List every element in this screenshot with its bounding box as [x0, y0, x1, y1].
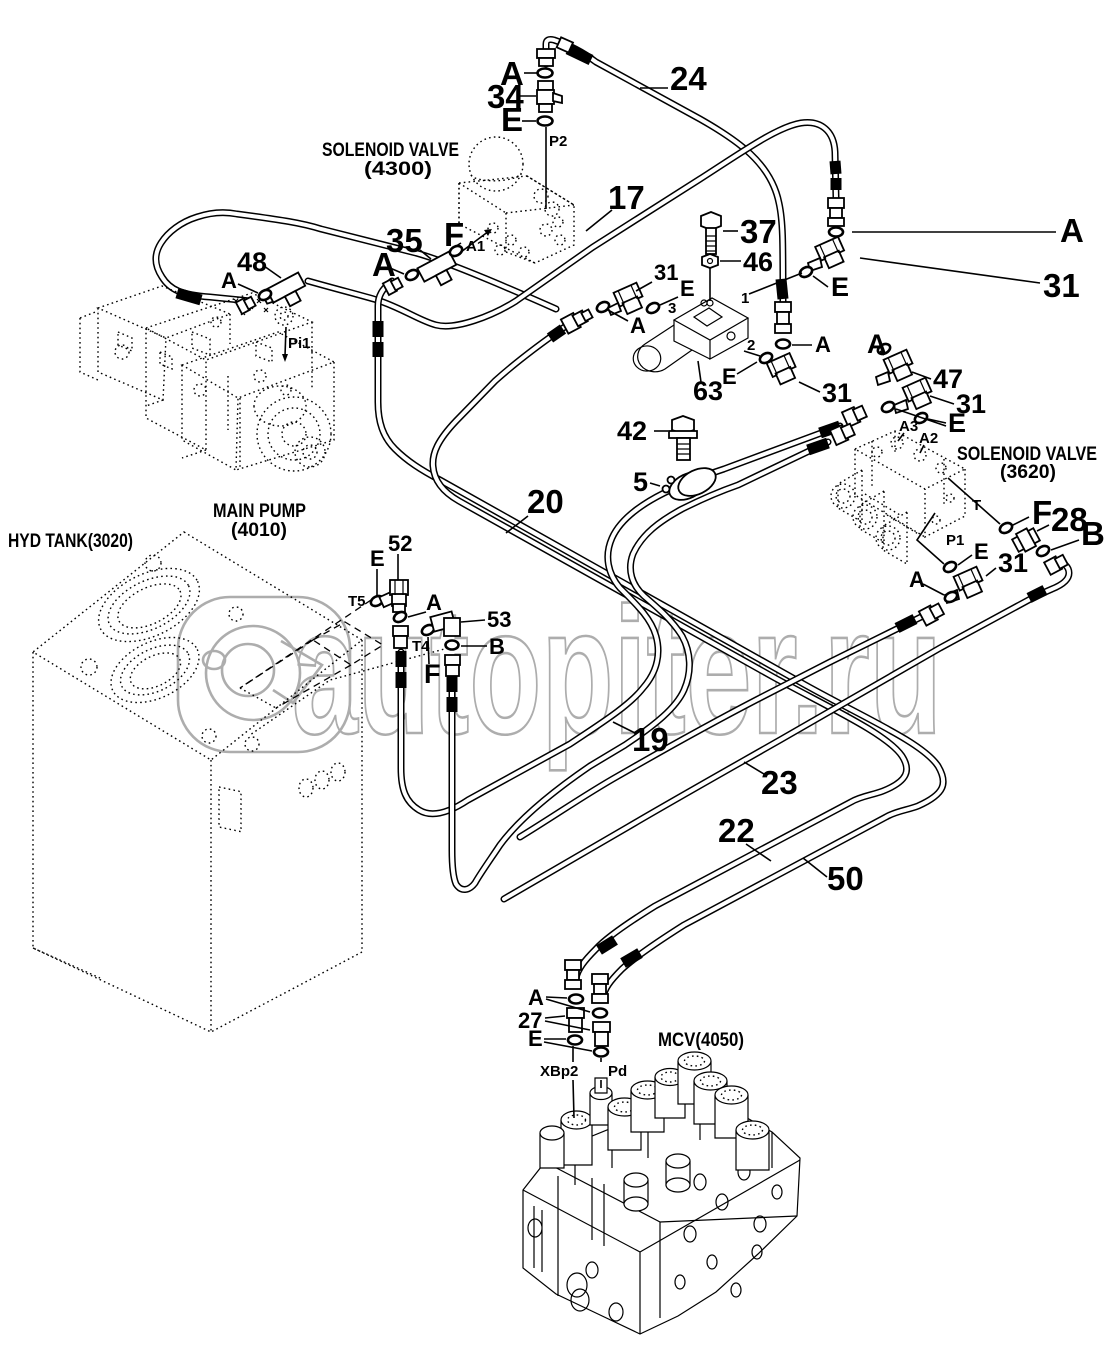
svg-text:A3: A3 [899, 418, 918, 435]
svg-text:23: 23 [761, 764, 798, 801]
svg-text:MCV(4050): MCV(4050) [658, 1030, 744, 1051]
svg-text:(4010): (4010) [231, 520, 287, 541]
svg-text:MAIN PUMP: MAIN PUMP [213, 501, 306, 522]
svg-text:A: A [528, 985, 544, 1010]
svg-text:31: 31 [654, 260, 678, 285]
svg-text:52: 52 [388, 531, 412, 556]
svg-text:50: 50 [827, 860, 864, 897]
svg-text:53: 53 [487, 607, 511, 632]
svg-text:P2: P2 [549, 133, 567, 150]
svg-text:E: E [501, 101, 523, 138]
svg-text:E: E [974, 539, 989, 564]
svg-text:A: A [1060, 212, 1084, 249]
svg-text:T5: T5 [348, 593, 366, 610]
svg-text:31: 31 [822, 378, 852, 408]
svg-text:XBp2: XBp2 [540, 1063, 578, 1080]
svg-text:3: 3 [668, 300, 676, 317]
svg-text:A2: A2 [919, 430, 938, 447]
svg-text:F: F [424, 659, 441, 689]
svg-text:(4300): (4300) [364, 159, 432, 180]
svg-text:HYD TANK(3020): HYD TANK(3020) [8, 531, 133, 552]
svg-text:E: E [831, 272, 849, 302]
svg-text:17: 17 [608, 179, 645, 216]
svg-text:E: E [722, 364, 737, 389]
svg-text:31: 31 [998, 548, 1028, 578]
svg-text:63: 63 [693, 376, 723, 406]
svg-text:46: 46 [743, 247, 773, 277]
svg-text:Pd: Pd [608, 1063, 627, 1080]
svg-text:48: 48 [237, 247, 267, 277]
svg-text:Pi1: Pi1 [288, 335, 311, 352]
svg-text:P1: P1 [946, 532, 964, 549]
svg-text:A: A [909, 567, 925, 592]
svg-text:42: 42 [617, 416, 647, 446]
svg-text:B: B [489, 634, 505, 659]
svg-text:A: A [630, 313, 646, 338]
svg-text:A: A [372, 246, 396, 283]
svg-text:24: 24 [670, 60, 707, 97]
svg-text:E: E [948, 408, 966, 438]
svg-text:A: A [221, 268, 237, 293]
svg-text:E: E [528, 1026, 543, 1051]
svg-text:2: 2 [747, 337, 755, 354]
svg-text:19: 19 [632, 721, 669, 758]
svg-text:22: 22 [718, 812, 755, 849]
svg-text:(3620): (3620) [1000, 462, 1056, 483]
svg-text:E: E [370, 546, 385, 571]
svg-text:E: E [680, 276, 695, 301]
svg-text:5: 5 [633, 467, 648, 497]
svg-text:31: 31 [1043, 267, 1080, 304]
svg-text:A: A [426, 590, 442, 615]
svg-text:B: B [1081, 515, 1105, 552]
svg-text:A: A [815, 332, 831, 357]
svg-text:20: 20 [527, 483, 564, 520]
svg-text:37: 37 [740, 213, 777, 250]
svg-text:1: 1 [741, 290, 749, 307]
svg-text:SOLENOID VALVE: SOLENOID VALVE [322, 140, 459, 161]
